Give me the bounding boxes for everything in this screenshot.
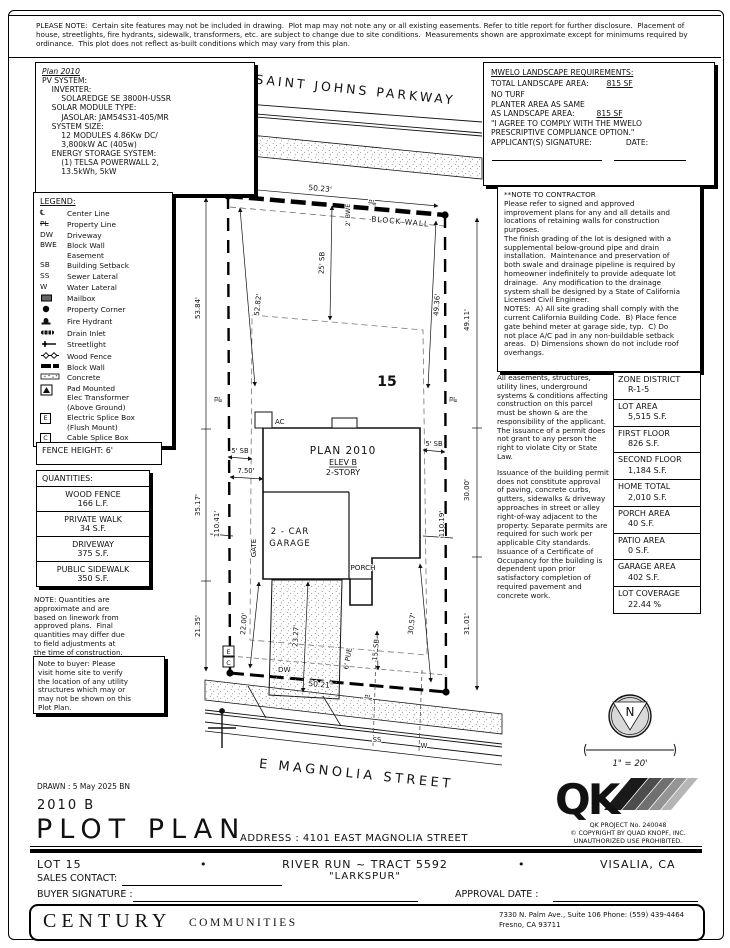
dim-15-sb: 15' SB: [371, 638, 381, 661]
north-arrow: N 1" = 20': [578, 690, 682, 776]
dim-25-sb: 25' SB: [318, 251, 327, 274]
pv-box-text: PV SYSTEM: INVERTER: SOLAREDGE SE 3800H-…: [42, 76, 248, 176]
dim-35-17: 35.17': [194, 494, 202, 516]
city-label: VISALIA, CA: [600, 858, 676, 871]
street-name-bottom: E MAGNOLIA STREET: [258, 757, 454, 792]
mwelo-box: MWELO LANDSCAPE REQUIREMENTS: TOTAL LAND…: [483, 62, 715, 186]
pl-label-top: PL: [368, 199, 377, 208]
tract-label: RIVER RUN ~ TRACT 5592: [255, 858, 475, 871]
footer-address-2: Fresno, CA 93711: [499, 921, 561, 929]
easements-paragraph-2: Issuance of the building permit does not…: [497, 469, 609, 601]
mwelo-planter-value: 815 SF: [575, 109, 645, 119]
zone-row: PORCH AREA40 S.F.: [614, 507, 700, 534]
date-line: [614, 159, 686, 161]
applicant-signature-line: [492, 159, 602, 161]
dim-23-27: 23.27': [291, 625, 300, 647]
qk-project-number: QK PROJECT No. 240048: [553, 822, 703, 830]
quantity-row: PUBLIC SIDEWALK350 S.F.: [36, 562, 150, 587]
dim-22-00: 22.00': [239, 612, 249, 635]
drain-inlet-icon: [40, 329, 67, 338]
fence-height-box: FENCE HEIGHT: 6': [36, 442, 162, 465]
qk-logo-stripes: [604, 778, 698, 810]
dim-31-01: 31.01': [463, 613, 471, 635]
dim-30-00: 30.00': [463, 479, 471, 501]
top-disclaimer: PLEASE NOTE: Certain site features may n…: [36, 22, 696, 48]
footer-brand-2: COMMUNITIES: [189, 917, 298, 929]
zone-row: GARAGE AREA402 S.F.: [614, 560, 700, 587]
zone-row: LOT COVERAGE22.44 %: [614, 587, 700, 613]
dim-53-84: 53.84': [194, 297, 202, 319]
lot-number: 15: [377, 374, 396, 390]
titleblock-rule-thin: [30, 846, 702, 847]
legend-title: LEGEND:: [40, 197, 167, 207]
easements-note: All easements, structures, utility lines…: [497, 374, 609, 601]
address-line: ADDRESS : 4101 EAST MAGNOLIA STREET: [240, 833, 468, 844]
quantities-title: QUANTITIES:: [36, 470, 150, 487]
dim-21-35: 21.35': [194, 615, 202, 637]
property-corner-icon: [40, 305, 67, 315]
elev-label: ELEV B: [329, 458, 357, 467]
dim-2-bwe: 2' BWE: [344, 204, 352, 227]
qk-copyright-line2: UNAUTHORIZED USE PROHIBITED.: [553, 838, 703, 846]
bwe-symbol: BWE: [40, 241, 67, 249]
dim-52-82: 52.82': [253, 293, 263, 316]
qk-logo: QK: [553, 776, 703, 822]
dim-50-23: 50.23': [308, 183, 332, 194]
pl-label-front: PL: [364, 694, 373, 703]
mailbox-icon: [40, 294, 67, 304]
bullet-1: •: [200, 858, 207, 871]
dw-label: DW: [278, 665, 291, 674]
cable-splice-label: C: [226, 659, 231, 667]
transformer-icon: [40, 384, 67, 398]
parkway-sidewalk: [220, 132, 482, 179]
legend-box: LEGEND: ℄Center Line PLProperty Line DWD…: [33, 192, 173, 447]
zone-row: LOT AREA5,515 S.F.: [614, 400, 700, 427]
plan-code: 2010 B: [37, 798, 95, 813]
dim-110-41: 110.41': [213, 511, 221, 537]
sewer-label: SS: [373, 736, 382, 744]
plot-plan-sheet: PLEASE NOTE: Certain site features may n…: [0, 0, 730, 948]
driveway-symbol: DW: [40, 231, 67, 239]
electric-splice-label: E: [226, 648, 230, 656]
garage-label-2: GARAGE: [269, 539, 311, 549]
bullet-2: •: [518, 858, 525, 871]
quantities-table: QUANTITIES: WOOD FENCE166 L.F. PRIVATE W…: [36, 470, 150, 587]
streetlight-icon: [40, 340, 67, 350]
story-label: 2-STORY: [326, 468, 360, 477]
plan-label: PLAN 2010: [310, 445, 377, 457]
zone-row: SECOND FLOOR1,184 S.F.: [614, 453, 700, 480]
buyer-note-box: Note to buyer: Please visit home site to…: [33, 656, 165, 714]
quantity-row: DRIVEWAY375 S.F.: [36, 537, 150, 562]
north-label: N: [626, 705, 635, 719]
pl-label-right: PL: [449, 396, 457, 404]
street-centerline: [205, 731, 502, 765]
scale-bar: [585, 744, 676, 756]
top-inner-rule: [9, 15, 721, 16]
quantities-note: NOTE: Quantities are approximate and are…: [34, 596, 158, 657]
dim-110-19: 110.19': [438, 511, 446, 537]
zone-row: HOME TOTAL2,010 S.F.: [614, 480, 700, 507]
qk-copyright-line1: © COPYRIGHT BY QUAD KNOPF, INC.: [553, 830, 703, 838]
pv-system-box: Plan 2010 PV SYSTEM: INVERTER: SOLAREDGE…: [35, 62, 255, 195]
sewer-symbol: SS: [40, 272, 67, 280]
scale-label: 1" = 20': [613, 759, 648, 769]
street-name-top: SAINT JOHNS PARKWAY: [255, 72, 457, 108]
approval-date-label: APPROVAL DATE :: [455, 889, 539, 900]
mwelo-title: MWELO LANDSCAPE REQUIREMENTS:: [491, 67, 707, 78]
tract-name-label: "LARKSPUR": [255, 871, 475, 882]
ac-label: AC: [275, 418, 285, 426]
pl-label-left: PL: [214, 396, 222, 404]
drawn-label: DRAWN : 5 May 2025 BN: [37, 782, 130, 791]
block-wall-line: [228, 196, 445, 215]
approval-date-line: [553, 900, 698, 902]
footer-brand: CENTURY: [43, 910, 171, 933]
contractor-note-box: **NOTE TO CONTRACTOR Please refer to sig…: [497, 186, 701, 372]
front-sidewalk: [205, 680, 502, 734]
setback-symbol: SB: [40, 261, 67, 269]
easements-paragraph-1: All easements, structures, utility lines…: [497, 374, 609, 462]
pv-box-title: Plan 2010: [42, 67, 248, 76]
centerline-symbol: ℄: [40, 209, 67, 217]
block-wall-icon: [40, 363, 67, 371]
quantity-row: PRIVATE WALK34 S.F.: [36, 512, 150, 537]
quantity-row: WOOD FENCE166 L.F.: [36, 487, 150, 512]
zone-row: ZONE DISTRICTR-1-5: [614, 373, 700, 400]
qk-copyright: QK PROJECT No. 240048 © COPYRIGHT BY QUA…: [553, 822, 703, 846]
property-line-symbol: PL: [40, 220, 67, 228]
roof-bump: [332, 418, 357, 428]
block-wall-label: BLOCK WALL: [371, 214, 430, 228]
water-label: W: [421, 742, 428, 750]
footer-address-1: 7330 N. Palm Ave., Suite 106 Phone: (559…: [499, 911, 684, 919]
dim-7-50: 7.50': [237, 467, 254, 475]
streetlight-symbol: [208, 709, 236, 748]
titleblock-rule-thick: [30, 849, 702, 853]
property-line-left: [228, 196, 230, 673]
garage-label-1: 2 - CAR: [271, 527, 310, 537]
qk-logo-text: QK: [555, 776, 622, 822]
sales-contact-line: [122, 884, 282, 886]
buyer-signature-label: BUYER SIGNATURE :: [37, 889, 133, 900]
water-symbol: W: [40, 283, 67, 291]
ac-pad: [255, 412, 272, 428]
parkway-road-lines: [220, 102, 482, 136]
zone-row: FIRST FLOOR826 S.F.: [614, 427, 700, 454]
dim-49-11: 49.11': [463, 309, 471, 331]
buyer-signature-line: [133, 900, 418, 902]
dim-5sb-right: 5' SB: [425, 440, 443, 448]
lot-label: LOT 15: [37, 858, 82, 871]
dim-49-36: 49.36': [432, 294, 442, 317]
zone-row: PATIO AREA0 S.F.: [614, 534, 700, 561]
property-line-right: [445, 215, 446, 692]
dim-5sb-left: 5' SB: [231, 447, 249, 455]
footer-bar: CENTURY COMMUNITIES 7330 N. Palm Ave., S…: [29, 904, 705, 941]
concrete-icon: [40, 373, 67, 382]
dim-30-57: 30.57': [407, 612, 418, 635]
porch-label: PORCH: [350, 563, 375, 572]
electric-splice-icon: E: [40, 413, 67, 424]
mwelo-total-value: 815 SF: [589, 78, 651, 89]
fire-hydrant-icon: [40, 317, 67, 328]
sheet-title: PLOT PLAN: [36, 814, 246, 845]
gate-label: GATE: [250, 539, 258, 557]
sales-contact-label: SALES CONTACT:: [37, 873, 117, 884]
wood-fence-icon: [40, 352, 67, 361]
zone-table: ZONE DISTRICTR-1-5 LOT AREA5,515 S.F. FI…: [613, 372, 701, 614]
